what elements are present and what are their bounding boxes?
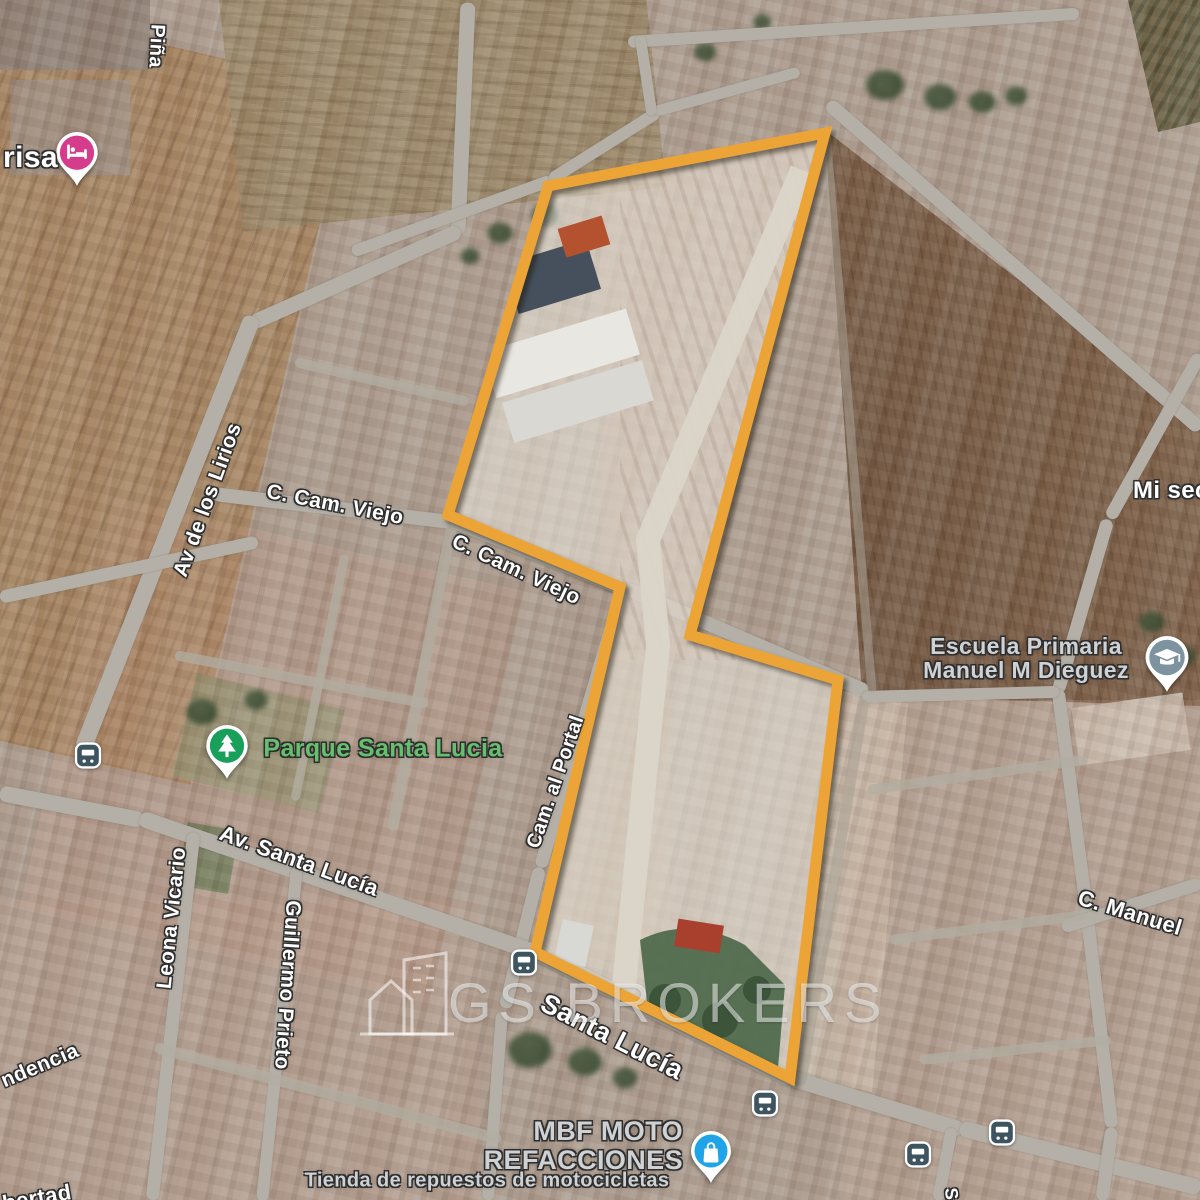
road-cam-viejo-c bbox=[622, 582, 870, 699]
tree bbox=[568, 1048, 602, 1076]
bus-stop-icon[interactable] bbox=[905, 1141, 932, 1173]
school-label-line1: Escuela Primaria bbox=[923, 634, 1129, 658]
street-label-pina: Piña bbox=[143, 24, 168, 69]
bus-stop-icon[interactable] bbox=[752, 1090, 779, 1122]
urban-tint-bottom-right bbox=[840, 700, 1200, 1200]
park-label: Parque Santa Lucia bbox=[263, 735, 502, 764]
road-top-horizontal bbox=[628, 8, 1080, 48]
school-label: Escuela Primaria Manuel M Dieguez bbox=[923, 634, 1129, 682]
road-residential-1 bbox=[294, 357, 470, 407]
hotel-pin[interactable] bbox=[54, 132, 100, 193]
hotel-label: risa bbox=[3, 141, 58, 175]
building-cluster-top-left bbox=[0, 0, 150, 70]
tree bbox=[694, 43, 716, 61]
street-label-cam-viejo-1: C. Cam. Viejo bbox=[264, 480, 405, 530]
street-label-santa-lucia: Santa Lucía bbox=[535, 988, 688, 1086]
tree bbox=[1140, 612, 1165, 633]
red-roof-house bbox=[674, 919, 724, 954]
school-pin[interactable] bbox=[1143, 636, 1191, 699]
tree bbox=[187, 699, 218, 725]
moto-shop-label: MBF MOTO REFACCIONES bbox=[484, 1117, 683, 1175]
tree bbox=[461, 248, 480, 264]
tree bbox=[613, 1068, 638, 1089]
tree bbox=[1005, 87, 1027, 106]
satellite-map[interactable]: Piña Av de los Lirios C. Cam. Viejo C. C… bbox=[0, 0, 1200, 1200]
moto-shop-subtitle: Tienda de repuestos de motocicletas bbox=[305, 1170, 670, 1193]
tree bbox=[508, 1032, 552, 1068]
road-curvy-c bbox=[654, 66, 802, 116]
farmland-top bbox=[219, 0, 666, 232]
tree bbox=[924, 84, 956, 110]
bus-stop-icon[interactable] bbox=[75, 742, 102, 774]
tree bbox=[488, 223, 513, 244]
moto-shop-label-line1: MBF MOTO bbox=[484, 1117, 683, 1146]
bus-stop-icon[interactable] bbox=[511, 949, 538, 981]
park-pin[interactable] bbox=[204, 725, 250, 786]
warehouse-buildings bbox=[454, 216, 657, 445]
street-label-s: S bbox=[940, 1187, 962, 1200]
school-label-line2: Manuel M Dieguez bbox=[923, 658, 1129, 682]
poi-label-mi-sec: Mi sec bbox=[1133, 477, 1200, 505]
tree bbox=[532, 204, 559, 227]
tree bbox=[245, 691, 268, 710]
moto-shop-pin[interactable] bbox=[689, 1131, 733, 1190]
tree bbox=[969, 91, 996, 113]
bus-stop-icon[interactable] bbox=[989, 1119, 1016, 1151]
tree bbox=[866, 70, 904, 100]
